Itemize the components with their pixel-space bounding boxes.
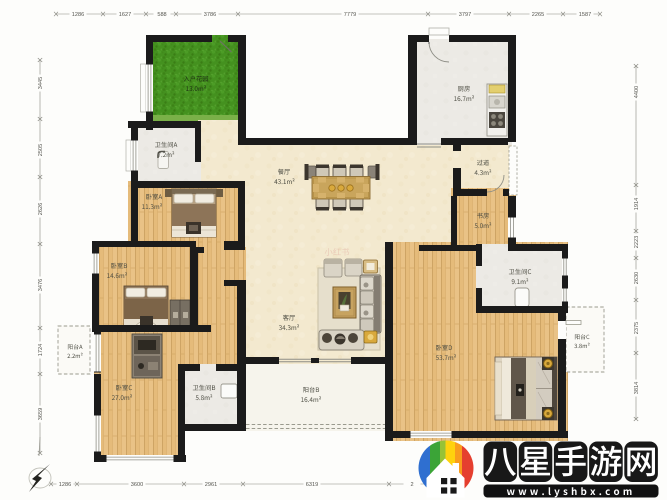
svg-text:1627: 1627	[119, 12, 131, 18]
svg-text:3814: 3814	[634, 382, 640, 394]
svg-text:1724: 1724	[38, 344, 44, 356]
svg-text:3786: 3786	[204, 12, 216, 18]
svg-text:3659: 3659	[38, 408, 44, 420]
svg-text:2961: 2961	[205, 482, 217, 488]
svg-text:2265: 2265	[532, 12, 544, 18]
svg-text:7779: 7779	[344, 12, 356, 18]
svg-text:2: 2	[410, 482, 413, 488]
svg-text:1286: 1286	[72, 12, 84, 18]
svg-text:2505: 2505	[38, 144, 44, 156]
svg-text:2223: 2223	[634, 236, 640, 248]
svg-text:3476: 3476	[38, 279, 44, 291]
svg-text:1587: 1587	[579, 12, 591, 18]
svg-text:3797: 3797	[459, 12, 471, 18]
svg-text:2375: 2375	[634, 322, 640, 334]
svg-text:1914: 1914	[634, 198, 640, 210]
svg-text:3600: 3600	[131, 482, 143, 488]
svg-text:588: 588	[157, 12, 166, 18]
svg-text:2626: 2626	[38, 203, 44, 215]
svg-text:6319: 6319	[306, 482, 318, 488]
svg-text:3445: 3445	[38, 77, 44, 89]
svg-text:2630: 2630	[634, 272, 640, 284]
svg-text:1286: 1286	[59, 482, 71, 488]
svg-text:4400: 4400	[634, 86, 640, 98]
